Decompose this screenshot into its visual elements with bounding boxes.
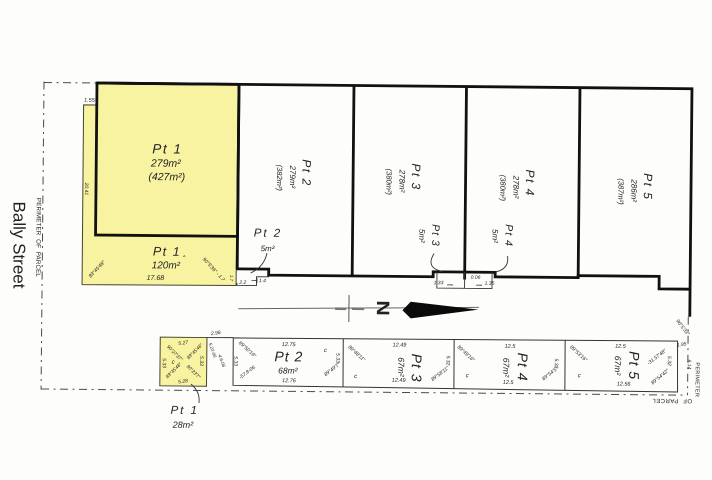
svg-text:1.4: 1.4 (259, 278, 266, 284)
svg-text:286m²: 286m² (629, 178, 638, 202)
svg-text:(387m²): (387m²) (616, 178, 625, 205)
svg-text:12.76: 12.76 (282, 378, 297, 384)
svg-text:5m²: 5m² (417, 229, 426, 243)
svg-text:PERIMETER: PERIMETER (694, 362, 700, 397)
svg-text:c: c (354, 374, 357, 380)
svg-text:(380m²): (380m²) (384, 169, 393, 196)
svg-text:12.5: 12.5 (505, 344, 517, 350)
svg-text:Pt 4: Pt 4 (515, 353, 531, 382)
svg-text:Pt 3: Pt 3 (429, 224, 441, 247)
svg-text:1.95: 1.95 (676, 341, 687, 348)
svg-text:Pt 5: Pt 5 (641, 173, 655, 200)
svg-text:1.7: 1.7 (229, 275, 234, 282)
svg-text:5m²: 5m² (490, 229, 499, 243)
svg-text:278m²: 278m² (511, 175, 520, 199)
svg-text:OF PARCEL: OF PARCEL (652, 397, 692, 404)
svg-text:Pt 2: Pt 2 (299, 159, 313, 186)
svg-text:0.06: 0.06 (471, 275, 481, 281)
svg-text:Pt 3: Pt 3 (409, 354, 425, 383)
svg-text:Pt 2: Pt 2 (254, 228, 283, 240)
svg-text:279m²: 279m² (288, 164, 297, 188)
svg-text:17.68: 17.68 (147, 275, 165, 282)
svg-text:12.5: 12.5 (615, 344, 627, 350)
svg-text:20.41: 20.41 (83, 182, 89, 196)
svg-text:N: N (373, 300, 393, 316)
svg-text:(427m²): (427m²) (148, 171, 185, 183)
svg-text:120m²: 120m² (152, 260, 181, 271)
svg-text:(380m²): (380m²) (498, 175, 507, 202)
svg-text:Pt 5: Pt 5 (626, 351, 642, 380)
svg-text:67m²: 67m² (501, 358, 511, 379)
svg-text:PERIMETER OF PARCEL: PERIMETER OF PARCEL (34, 198, 42, 277)
svg-text:Pt 1: Pt 1 (170, 405, 199, 417)
svg-text:68m²: 68m² (278, 365, 299, 375)
svg-text:(382m²): (382m²) (275, 165, 284, 192)
svg-text:278m²: 278m² (397, 169, 406, 193)
svg-text:5.28: 5.28 (178, 378, 189, 385)
svg-text:67m²: 67m² (613, 356, 623, 377)
svg-text:5.32: 5.32 (666, 356, 672, 366)
svg-text:1.33: 1.33 (434, 280, 444, 286)
svg-text:12.49: 12.49 (393, 342, 407, 348)
svg-text:12.75: 12.75 (282, 342, 297, 348)
svg-text:5.33: 5.33 (161, 358, 167, 368)
svg-text:5.33: 5.33 (198, 356, 204, 366)
svg-text:c: c (578, 373, 581, 379)
svg-text:c: c (324, 348, 327, 354)
svg-text:1.55: 1.55 (84, 98, 96, 104)
svg-text:2.2: 2.2 (238, 280, 246, 286)
svg-text:Pt 3: Pt 3 (409, 163, 423, 190)
svg-text:6.14: 6.14 (686, 359, 692, 369)
svg-text:5.32: 5.32 (553, 359, 559, 369)
svg-text:12.49: 12.49 (392, 378, 406, 384)
svg-text:Pt 4: Pt 4 (502, 224, 514, 247)
svg-text:Pt 1: Pt 1 (152, 141, 182, 156)
svg-text:Pt 1: Pt 1 (153, 245, 181, 259)
svg-text:12.56: 12.56 (617, 382, 632, 388)
svg-text:5.32: 5.32 (445, 356, 451, 366)
svg-text:12.5: 12.5 (503, 380, 515, 386)
svg-text:5m²: 5m² (261, 244, 275, 253)
svg-text:5.33: 5.33 (232, 356, 238, 366)
svg-text:279m²: 279m² (150, 158, 181, 170)
svg-text:67m²: 67m² (396, 357, 406, 378)
svg-text:Pt 4: Pt 4 (523, 169, 537, 196)
svg-text:c: c (466, 373, 469, 379)
svg-text:⌃: ⌃ (181, 255, 186, 262)
svg-text:28m²: 28m² (172, 420, 195, 430)
svg-text:1.35: 1.35 (485, 281, 495, 287)
svg-text:c: c (172, 360, 175, 366)
svg-text:5.27: 5.27 (178, 340, 189, 347)
svg-text:Pt 2: Pt 2 (274, 348, 303, 364)
svg-text:Bally Street: Bally Street (10, 202, 29, 289)
svg-text:5.33: 5.33 (334, 353, 340, 363)
